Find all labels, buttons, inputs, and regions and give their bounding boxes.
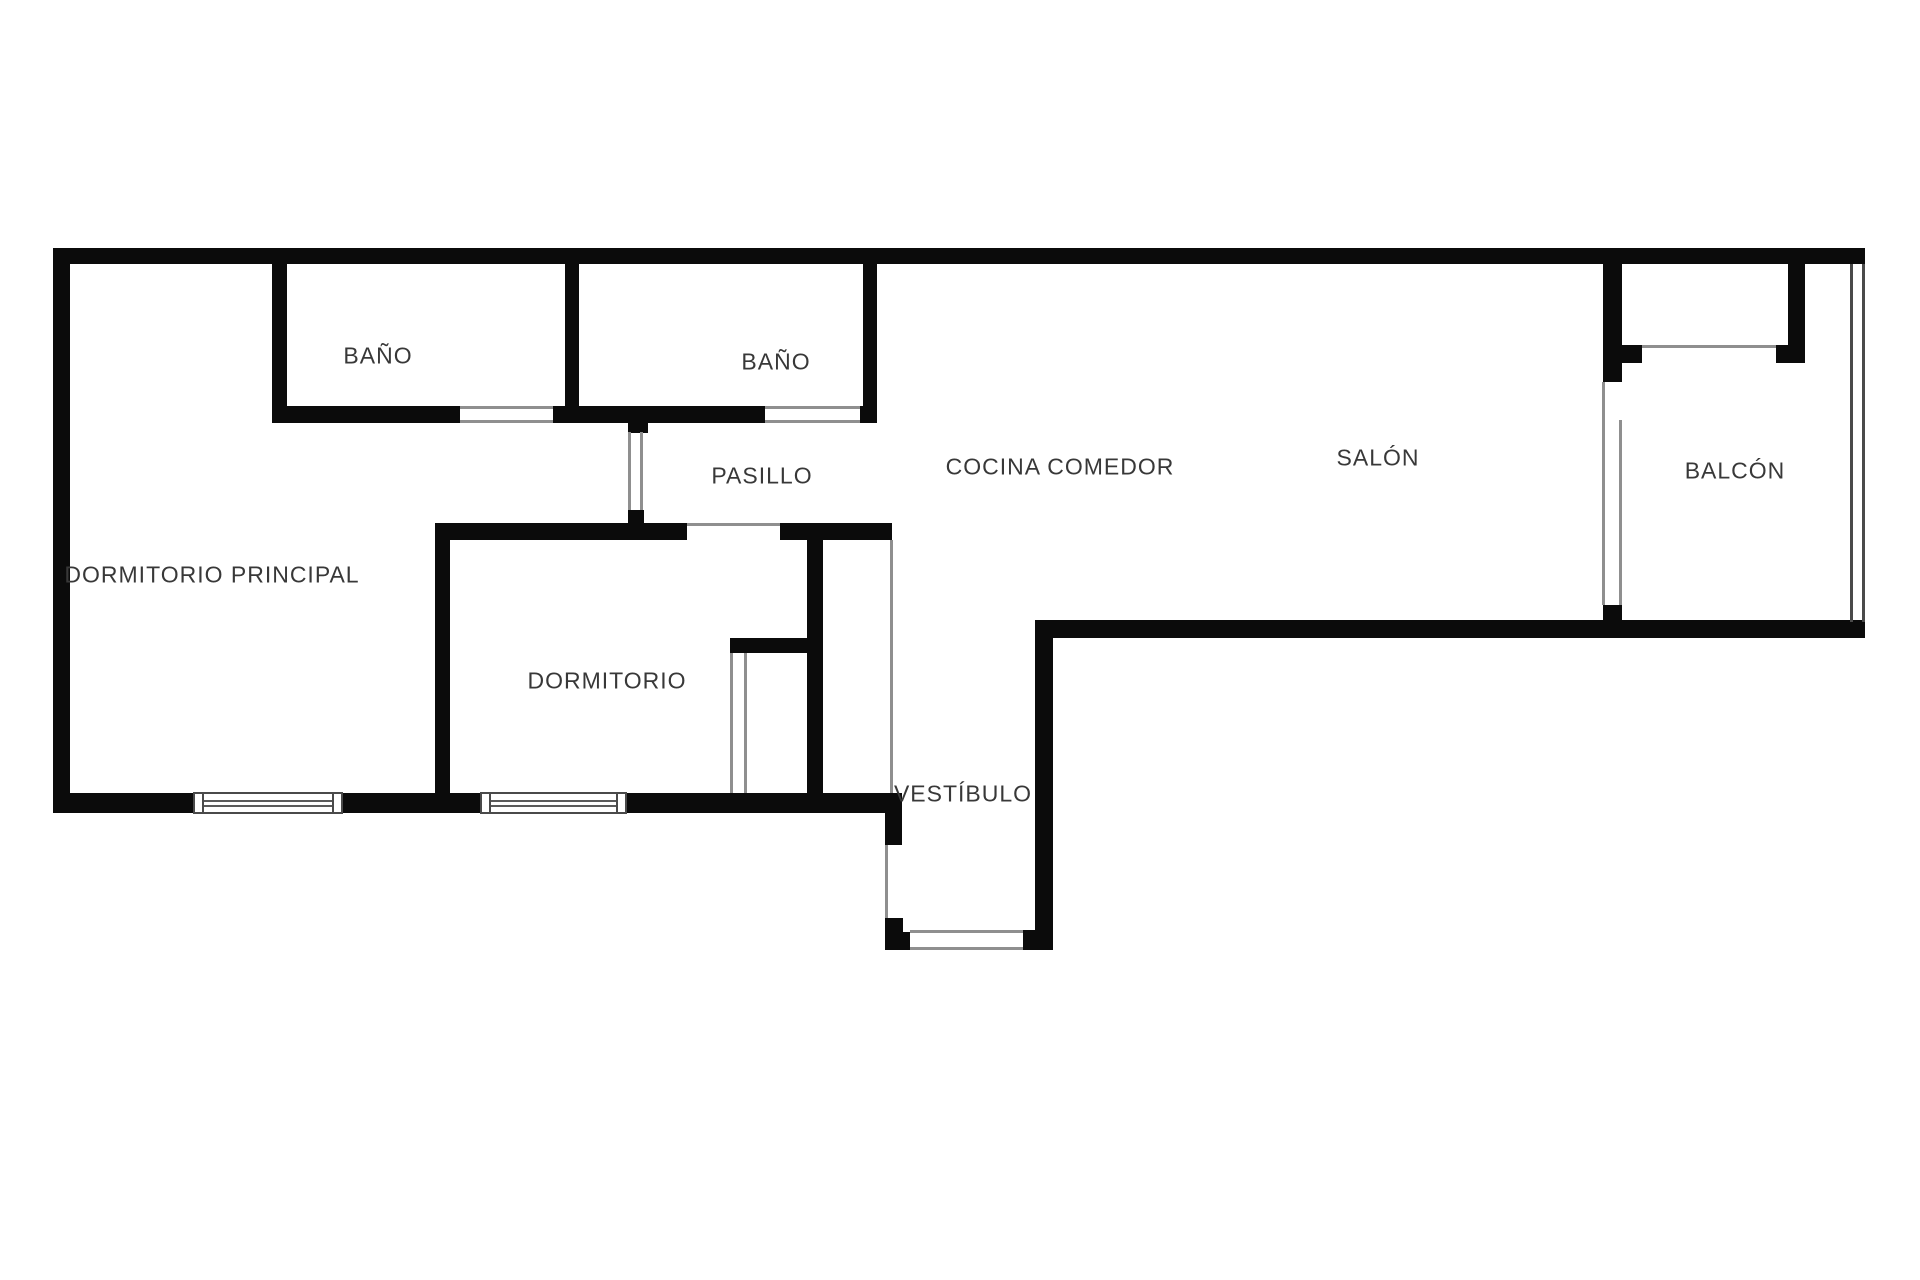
wall-salon-balcony-divider <box>1603 263 1622 382</box>
bedroom-door-line <box>687 523 780 526</box>
hall-door-frame-left <box>628 432 631 511</box>
balcony-glass-door-line-a <box>1602 382 1605 605</box>
wall-bath-bottom-a <box>272 406 460 423</box>
wall-bath-bottom-b <box>553 406 765 423</box>
room-label-dormitorio-principal: DORMITORIO PRINCIPAL <box>64 562 359 589</box>
wall-vestibule-left-upper <box>885 813 902 845</box>
wall-bath1-left <box>272 263 287 420</box>
room-label-cocina-comedor: COCINA COMEDOR <box>946 454 1175 481</box>
window-end-cap <box>332 794 334 812</box>
wall-bath2-right <box>863 263 877 421</box>
bath2-door-line-top <box>765 406 860 409</box>
balcony-glazing-outer <box>1862 264 1865 622</box>
balcony-foot-right <box>1776 345 1805 363</box>
window-bedroom <box>480 792 627 814</box>
balcony-window-line <box>1642 345 1780 348</box>
wall-exterior-bottom-left <box>53 793 193 813</box>
wall-bedroom-top-a <box>435 523 687 540</box>
wall-vestibule-right <box>1035 620 1053 950</box>
wall-exterior-bottom-right <box>627 793 902 813</box>
balcony-stub-left <box>1620 345 1642 363</box>
balcony-glazing-inner <box>1850 264 1853 622</box>
window-end-cap <box>489 794 491 812</box>
wall-bath-bottom-c <box>860 406 877 423</box>
window-end-cap <box>202 794 204 812</box>
wall-exterior-top <box>53 248 1865 264</box>
wall-living-bottom <box>1035 620 1865 638</box>
corridor-thin-wall <box>890 540 893 793</box>
room-label-balcon: BALCÓN <box>1685 458 1786 485</box>
closet-frame-left <box>730 653 733 793</box>
wall-bedroom-left <box>435 523 450 795</box>
room-label-vestibulo: VESTÍBULO <box>894 781 1032 808</box>
balcony-block-right <box>1788 263 1805 345</box>
balcony-door-nub <box>1603 605 1622 620</box>
vestibule-entry-door-line <box>885 845 888 918</box>
wall-bedroom-right <box>807 540 823 795</box>
wall-bath-divider <box>565 263 579 420</box>
window-principal-bedroom <box>193 792 343 814</box>
floor-plan: BAÑO BAÑO PASILLO COCINA COMEDOR SALÓN B… <box>0 0 1920 1280</box>
room-label-pasillo: PASILLO <box>711 463 812 490</box>
wall-vestibule-corner-b <box>885 932 910 950</box>
bath2-door-line-bottom <box>765 420 860 423</box>
hall-door-post-top <box>628 420 648 433</box>
bath1-door-line-top <box>460 406 553 409</box>
window-pane-line <box>203 805 333 807</box>
window-end-cap <box>616 794 618 812</box>
window-pane-line <box>490 805 617 807</box>
hall-door-post-bottom <box>628 510 644 524</box>
wall-exterior-bottom-mid <box>343 793 480 813</box>
room-label-bano1: BAÑO <box>343 343 412 370</box>
vestibule-door-line-bottom <box>910 947 1023 950</box>
window-pane-line <box>203 800 333 802</box>
room-label-dormitorio: DORMITORIO <box>527 668 686 695</box>
wall-exterior-left <box>53 248 70 813</box>
room-label-salon: SALÓN <box>1337 445 1420 472</box>
wall-closet-stub <box>730 638 807 653</box>
balcony-glass-door-line-b <box>1619 420 1622 605</box>
vestibule-door-line-top <box>910 930 1023 933</box>
bath1-door-line-bottom <box>460 420 553 423</box>
window-pane-line <box>490 800 617 802</box>
wall-bedroom-top-b <box>780 523 892 540</box>
hall-door-frame-right <box>640 432 643 511</box>
closet-frame-right <box>744 653 747 793</box>
room-label-bano2: BAÑO <box>741 349 810 376</box>
